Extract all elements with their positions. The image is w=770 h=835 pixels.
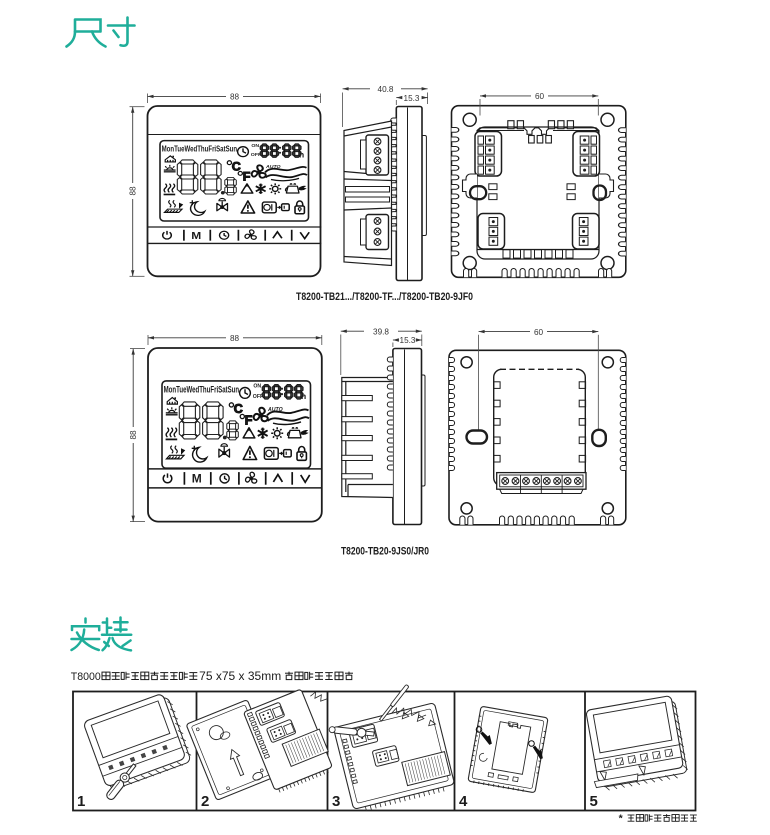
svg-text:3: 3	[332, 793, 340, 810]
svg-text:1: 1	[77, 793, 85, 810]
svg-text:2: 2	[201, 793, 209, 810]
svg-text:88: 88	[230, 334, 240, 343]
svg-text:60: 60	[534, 328, 544, 337]
svg-text:15.3: 15.3	[404, 94, 420, 103]
svg-text:T8200-TB21.../T8200-TF.../T820: T8200-TB21.../T8200-TF.../T8200-TB20-9JF…	[296, 291, 473, 303]
svg-text:60: 60	[535, 92, 545, 101]
svg-text:15.3: 15.3	[400, 336, 416, 345]
svg-text:75 x75 x 35mm: 75 x75 x 35mm	[199, 671, 281, 683]
svg-text:5: 5	[590, 793, 598, 810]
svg-text:88: 88	[230, 93, 240, 102]
svg-text:T8000: T8000	[71, 671, 101, 683]
svg-text:4: 4	[459, 793, 468, 810]
svg-text:88: 88	[129, 430, 138, 440]
svg-text:88: 88	[129, 186, 138, 196]
svg-text:T8200-TB20-9JS0/JR0: T8200-TB20-9JS0/JR0	[341, 546, 429, 558]
svg-text:39.8: 39.8	[373, 327, 389, 336]
svg-text:40.8: 40.8	[378, 85, 394, 94]
